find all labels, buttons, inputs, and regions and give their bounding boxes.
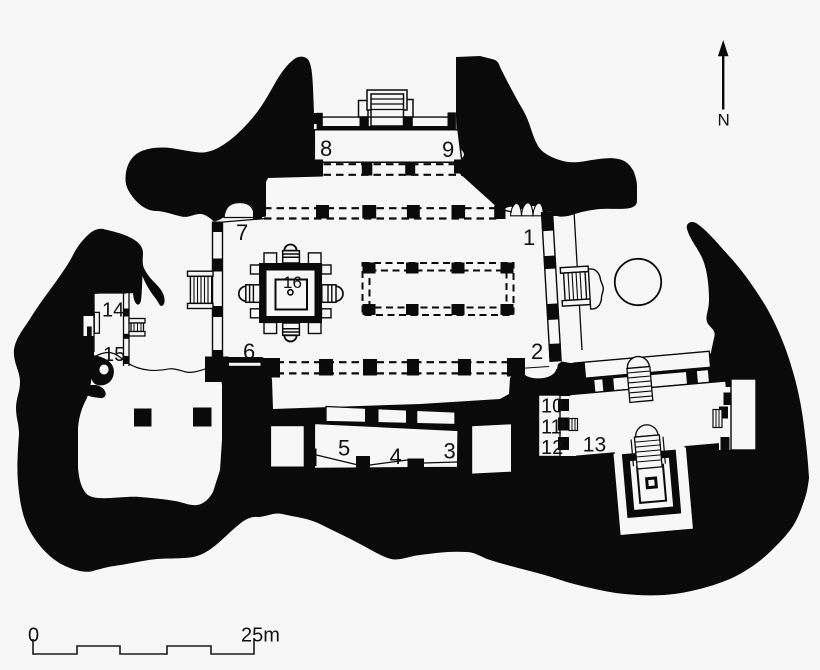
svg-text:1: 1 [523,225,535,250]
svg-text:14: 14 [102,300,124,322]
svg-text:10: 10 [541,396,563,418]
svg-text:N: N [718,111,730,130]
svg-text:8: 8 [320,136,332,161]
svg-text:13: 13 [583,434,606,457]
svg-text:12: 12 [541,437,563,459]
svg-text:11: 11 [541,417,562,439]
svg-text:6: 6 [243,339,255,364]
svg-text:5: 5 [338,436,350,461]
svg-text:16: 16 [283,273,302,292]
svg-text:2: 2 [531,339,543,364]
svg-text:9: 9 [442,137,454,162]
svg-text:15: 15 [103,344,125,366]
svg-text:7: 7 [236,220,248,245]
svg-text:25m: 25m [241,625,280,647]
svg-text:0: 0 [28,625,39,647]
svg-text:4: 4 [390,444,402,469]
svg-text:3: 3 [444,439,456,464]
